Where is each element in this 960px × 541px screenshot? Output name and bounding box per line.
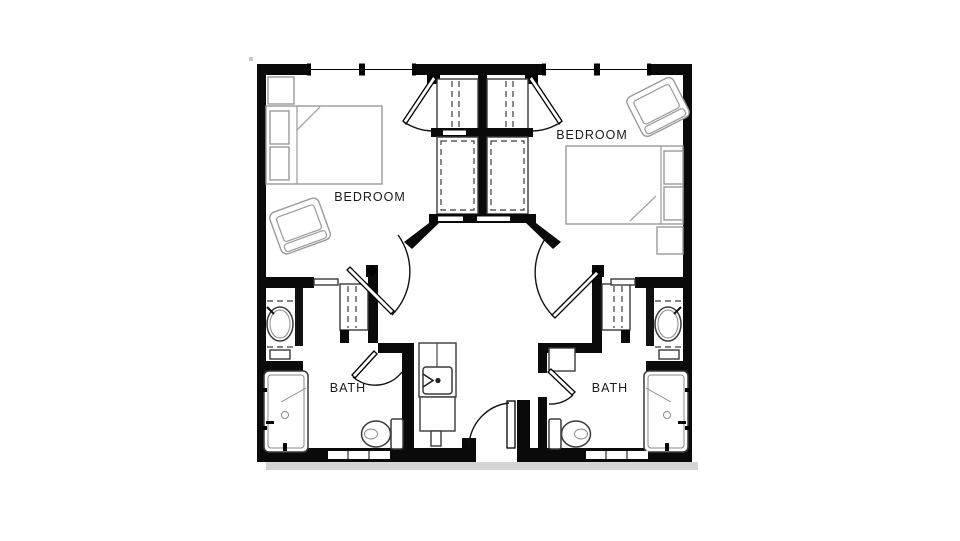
chamfer-wall-right	[526, 223, 561, 249]
room-label-bedroom-left: BEDROOM	[334, 190, 406, 204]
window-left	[307, 64, 416, 76]
toilet-icon	[549, 419, 591, 449]
linen-closet-right	[602, 284, 630, 330]
room-label-bedroom-right: BEDROOM	[556, 128, 628, 142]
room-label-bath-left: BATH	[330, 381, 366, 395]
vanity-sink-icon	[655, 301, 682, 359]
closet-center-wall	[478, 75, 487, 223]
wardrobe-lower-right	[487, 137, 528, 214]
nightstand-icon	[268, 77, 294, 104]
shower-icon	[262, 371, 308, 452]
bath-door-right	[548, 369, 575, 404]
bedroom-left: BEDROOM	[266, 77, 406, 256]
vanity-sink-icon	[267, 301, 294, 359]
grab-bar	[586, 451, 648, 459]
bed-icon	[566, 146, 683, 224]
toilet-icon	[362, 419, 404, 449]
closet-door-left	[403, 76, 436, 131]
chamfer-wall-left	[404, 223, 439, 249]
floor-plan-page: BEDROOM BEDROOM	[0, 0, 960, 541]
pillow-icon	[664, 187, 683, 220]
base-cabinet	[420, 397, 455, 431]
window-right	[542, 64, 651, 76]
wardrobe-upper-left	[437, 79, 478, 129]
lounge-chair-icon	[625, 76, 691, 139]
bedroom-door-right	[535, 236, 599, 318]
floor-plan: BEDROOM BEDROOM	[0, 0, 960, 541]
bed-icon	[266, 106, 382, 184]
bedroom-right: BEDROOM	[556, 76, 691, 254]
pillow-icon	[270, 147, 289, 180]
lounge-chair-icon	[268, 196, 332, 255]
vestibule-sink-cabinet	[419, 343, 456, 446]
shower-icon	[644, 371, 690, 452]
room-label-bath-right: BATH	[592, 381, 628, 395]
pillow-icon	[664, 151, 683, 184]
nightstand-icon	[657, 227, 683, 254]
central-closets	[403, 75, 562, 249]
closet-door-right	[529, 76, 562, 131]
pillow-icon	[270, 111, 289, 144]
wardrobe-upper-right	[487, 79, 528, 129]
linen-closet-left	[340, 284, 368, 330]
grab-bar	[328, 451, 390, 459]
wardrobe-lower-left	[437, 137, 478, 214]
cabinet-right	[549, 348, 575, 371]
